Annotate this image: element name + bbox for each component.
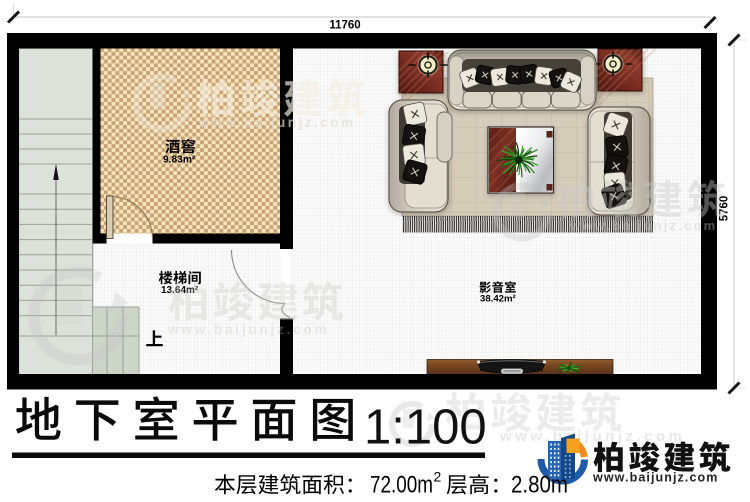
svg-text:2.80m: 2.80m [511,472,568,499]
svg-text:72.00m: 72.00m [370,472,433,499]
svg-text:1:100: 1:100 [364,401,487,455]
svg-text:www.baijunjz.com: www.baijunjz.com [499,428,685,445]
svg-text:38.42m²: 38.42m² [480,294,516,305]
svg-text:www.baijunjz.com: www.baijunjz.com [198,115,356,130]
svg-text:www.baijunjz.com: www.baijunjz.com [167,322,329,337]
svg-text:11760: 11760 [329,20,360,32]
svg-text:www.baijunjz.com: www.baijunjz.com [592,471,718,485]
svg-text:www.baijunjz.com: www.baijunjz.com [569,218,717,233]
svg-text:2: 2 [434,469,442,485]
svg-text:9.83m²: 9.83m² [163,155,196,166]
svg-text:5760: 5760 [719,196,731,222]
